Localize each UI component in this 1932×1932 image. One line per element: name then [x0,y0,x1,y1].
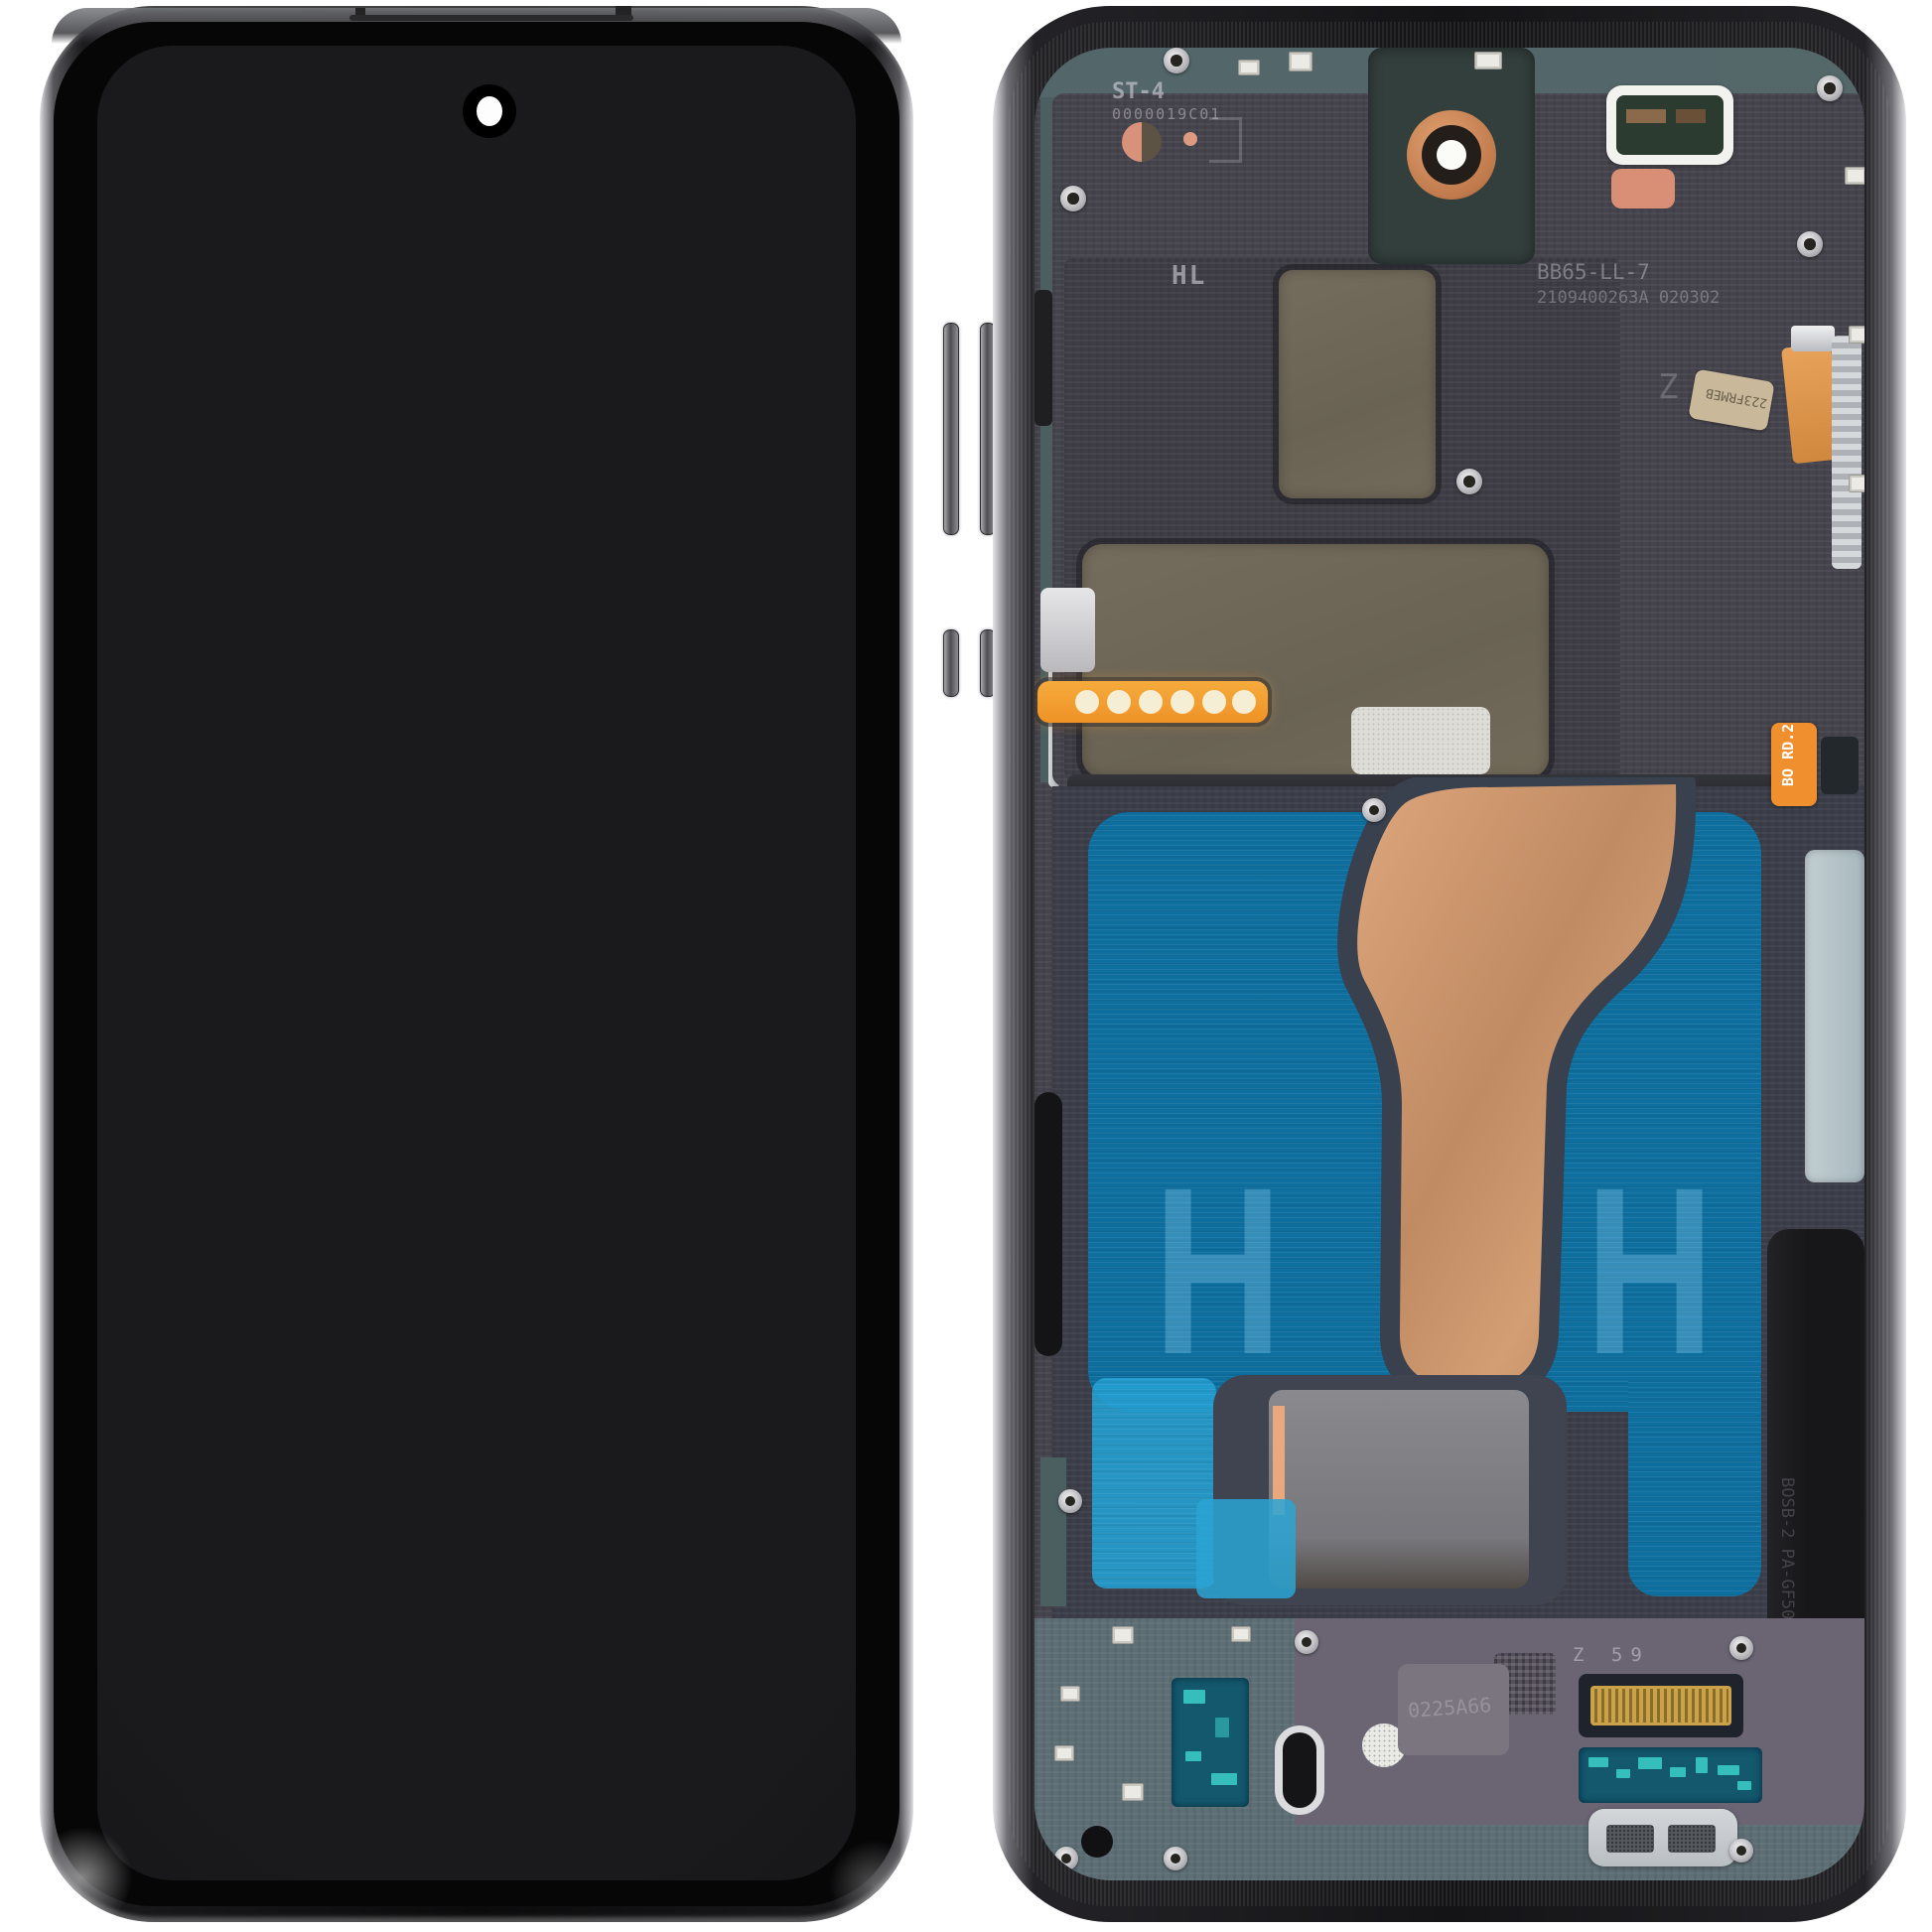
etched-mold-line1: BB65-LL-7 [1537,260,1650,284]
screw-boss [1295,1630,1318,1654]
top-flex-connector [1606,85,1733,165]
pcb-window-bottom [1579,1747,1762,1803]
etched-st4-code: 0000019C01 [1112,105,1221,123]
front-camera-module [1368,48,1535,264]
contact-pad [1202,690,1226,714]
product-photo: { "product": { "subject": "Smartphone di… [0,0,1932,1932]
bottom-code-block: 0225A66 [1398,1664,1509,1755]
smd-pad [1231,1626,1251,1642]
bo-sticker: BO RD.2 [1771,723,1817,806]
midframe-deck: ST-4 0000019C01 HL BB65-LL-7 2109400263A… [1035,48,1864,1880]
antenna-contact-flex [1037,681,1268,723]
charging-port-connector [1588,1809,1737,1866]
smd-pad [1060,1686,1080,1702]
etched-st4: ST-4 [1112,79,1165,104]
smd-pad [1849,475,1864,492]
earpiece-slit [349,15,633,21]
smd-pad [1289,52,1312,71]
screw-boss [1058,1489,1082,1513]
connector-pad [1626,109,1666,123]
adhesive-h-mark-left: H [1154,1142,1283,1400]
connector-pad [1676,109,1706,123]
cutout-blue-tab [1196,1499,1296,1598]
b2b-connector-pins [1590,1686,1731,1725]
port-mesh [1668,1825,1716,1853]
front-camera-lens [1437,140,1466,170]
side-key-flex-plate [1805,850,1864,1182]
rear-phone: ST-4 0000019C01 HL BB65-LL-7 2109400263A… [993,6,1906,1922]
connector-pcb [1616,95,1724,155]
metal-bracket [1040,588,1095,672]
port-mesh [1606,1825,1654,1853]
screw-boss [1729,1839,1753,1863]
left-black-insert [1035,290,1052,426]
punch-hole-camera [463,84,516,138]
screw-boss [1060,186,1086,211]
camera-lens-glare [477,96,502,126]
contact-pad [1139,690,1163,714]
screw-boss [1164,1847,1187,1870]
etched-mold-line2: 2109400263A 020302 [1537,288,1720,308]
etched-z59: Z 59 [1573,1644,1650,1666]
screw-boss [1362,798,1386,822]
pcb-window-left [1172,1678,1249,1807]
smd-pad [1054,1745,1074,1761]
screw-boss [1797,231,1823,257]
contact-pad [1171,690,1194,714]
screw-boss [1164,48,1189,73]
smd-pad [1845,167,1864,185]
cutout-grey-pad [1269,1390,1529,1588]
screw-boss [1817,75,1843,101]
b2b-connector-base [1579,1674,1743,1737]
white-mesh-pad [1351,707,1490,774]
screw-boss [1456,469,1482,494]
bo-sticker-text: BO RD.2 [1779,724,1797,786]
shield-strip [1832,336,1862,569]
salmon-pad [1611,169,1675,208]
edge-shine [824,1838,923,1932]
front-power-button [943,629,959,697]
alignment-dot [1122,122,1162,162]
embossed-e-mark [1209,117,1242,163]
smd-pad [1112,1626,1134,1644]
copper-dot [1183,132,1197,146]
front-volume-button [943,323,959,535]
side-key-connector [1821,737,1859,794]
olive-pad-small [1279,270,1436,498]
smd-pad [1849,326,1864,344]
screw-boss [1054,1847,1078,1870]
etched-hl: HL [1172,261,1206,291]
smd-pad [1474,52,1502,69]
bottom-code-text: 0225A66 [1407,1693,1492,1723]
edge-shine [28,1823,137,1932]
contact-pad [1075,690,1099,714]
flex-sticker-text: 223FRMEB [1698,383,1769,410]
coax-flex-tip [1791,326,1835,351]
screw-boss [1729,1636,1753,1660]
smd-pad [1238,60,1260,75]
front-screen [97,46,856,1880]
contact-pad [1107,690,1131,714]
left-teal-strip-lower [1040,1457,1066,1606]
contact-pad [1232,690,1256,714]
front-phone [40,6,913,1922]
copper-heat-flex [1283,777,1739,1462]
etched-z-stamp: Z [1658,367,1678,407]
antenna-strip-code: BOSB-2 PA-GF50 [1777,1477,1797,1619]
mic-pill [1283,1732,1316,1808]
smd-pad [1122,1783,1144,1801]
spen-slot [1035,1092,1062,1356]
screw-hole-dark [1081,1826,1113,1858]
